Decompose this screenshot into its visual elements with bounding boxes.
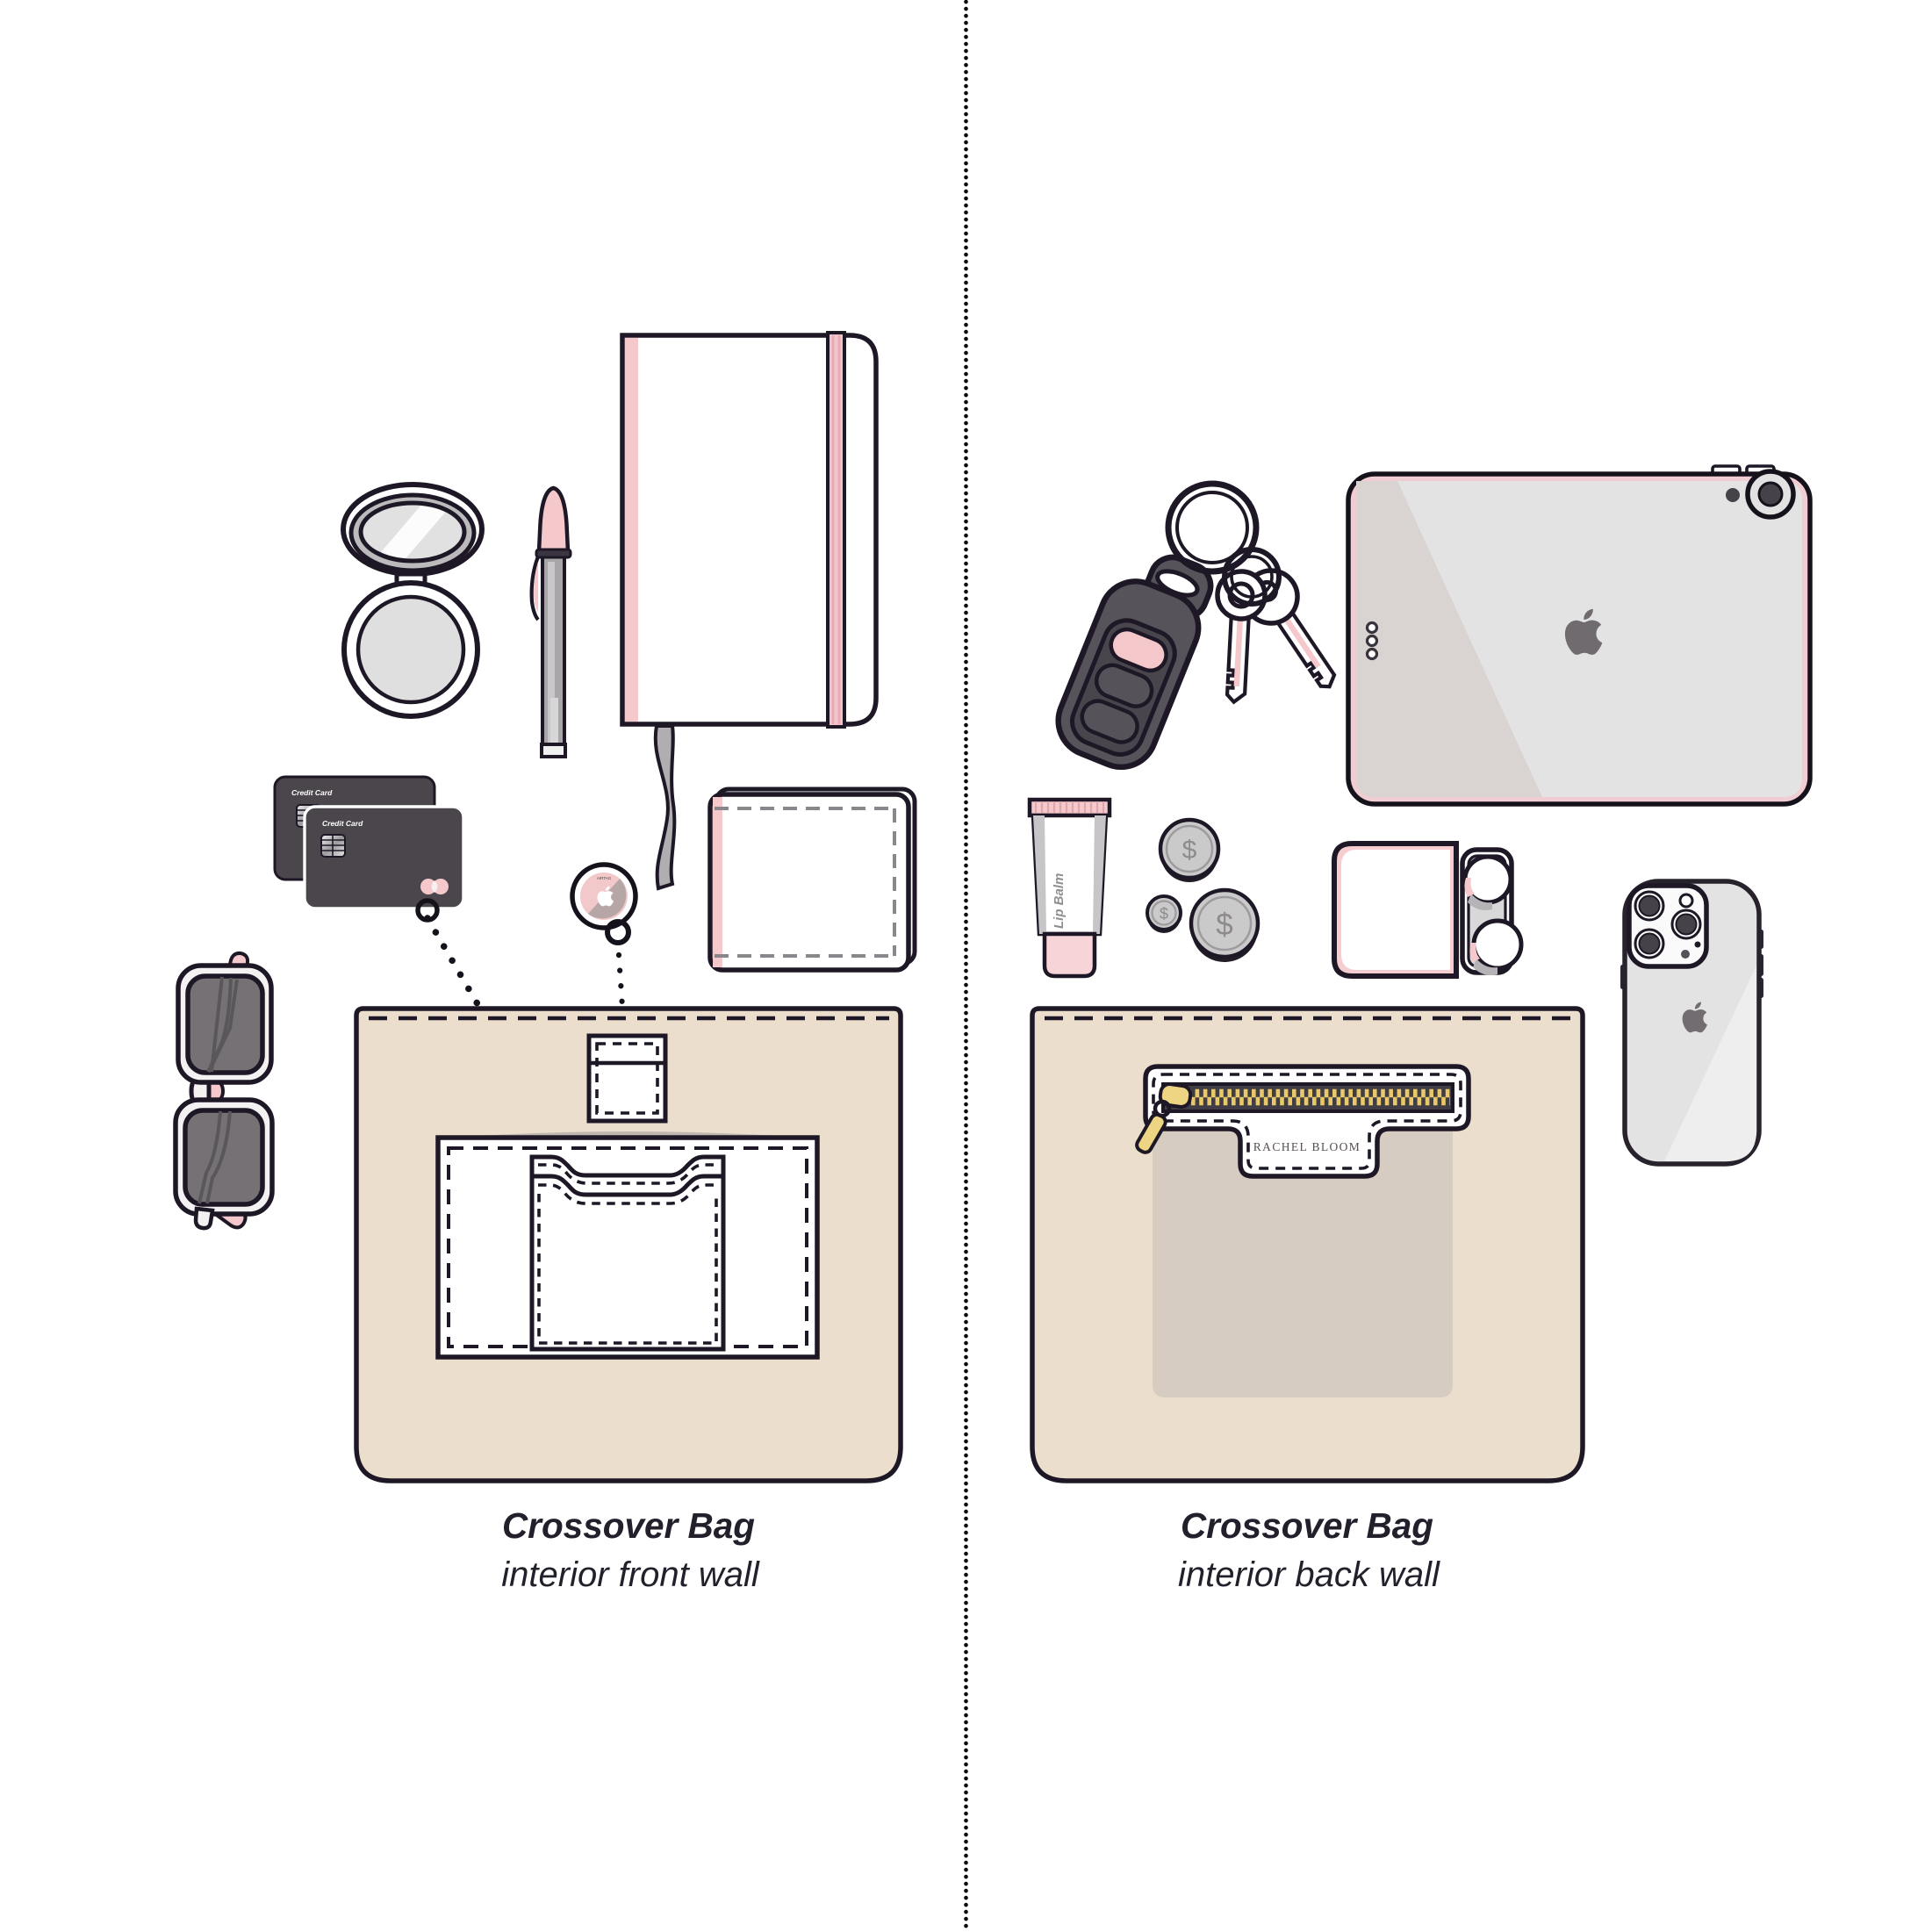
svg-text:$: $ [1216,908,1232,942]
svg-text:Credit Card: Credit Card [322,819,363,828]
svg-text:Crossover Bag: Crossover Bag [502,1505,755,1546]
svg-text:$: $ [1160,905,1168,923]
svg-text:AIRTAG: AIRTAG [597,876,612,880]
svg-text:interior back wall: interior back wall [1178,1555,1440,1594]
svg-text:Credit Card: Credit Card [291,788,333,797]
svg-text:$: $ [1182,836,1197,865]
svg-text:RACHEL BLOOM: RACHEL BLOOM [1253,1140,1361,1153]
svg-text:interior front wall: interior front wall [501,1555,760,1594]
svg-text:Lip Balm: Lip Balm [1052,873,1067,929]
svg-text:Crossover Bag: Crossover Bag [1181,1505,1433,1546]
